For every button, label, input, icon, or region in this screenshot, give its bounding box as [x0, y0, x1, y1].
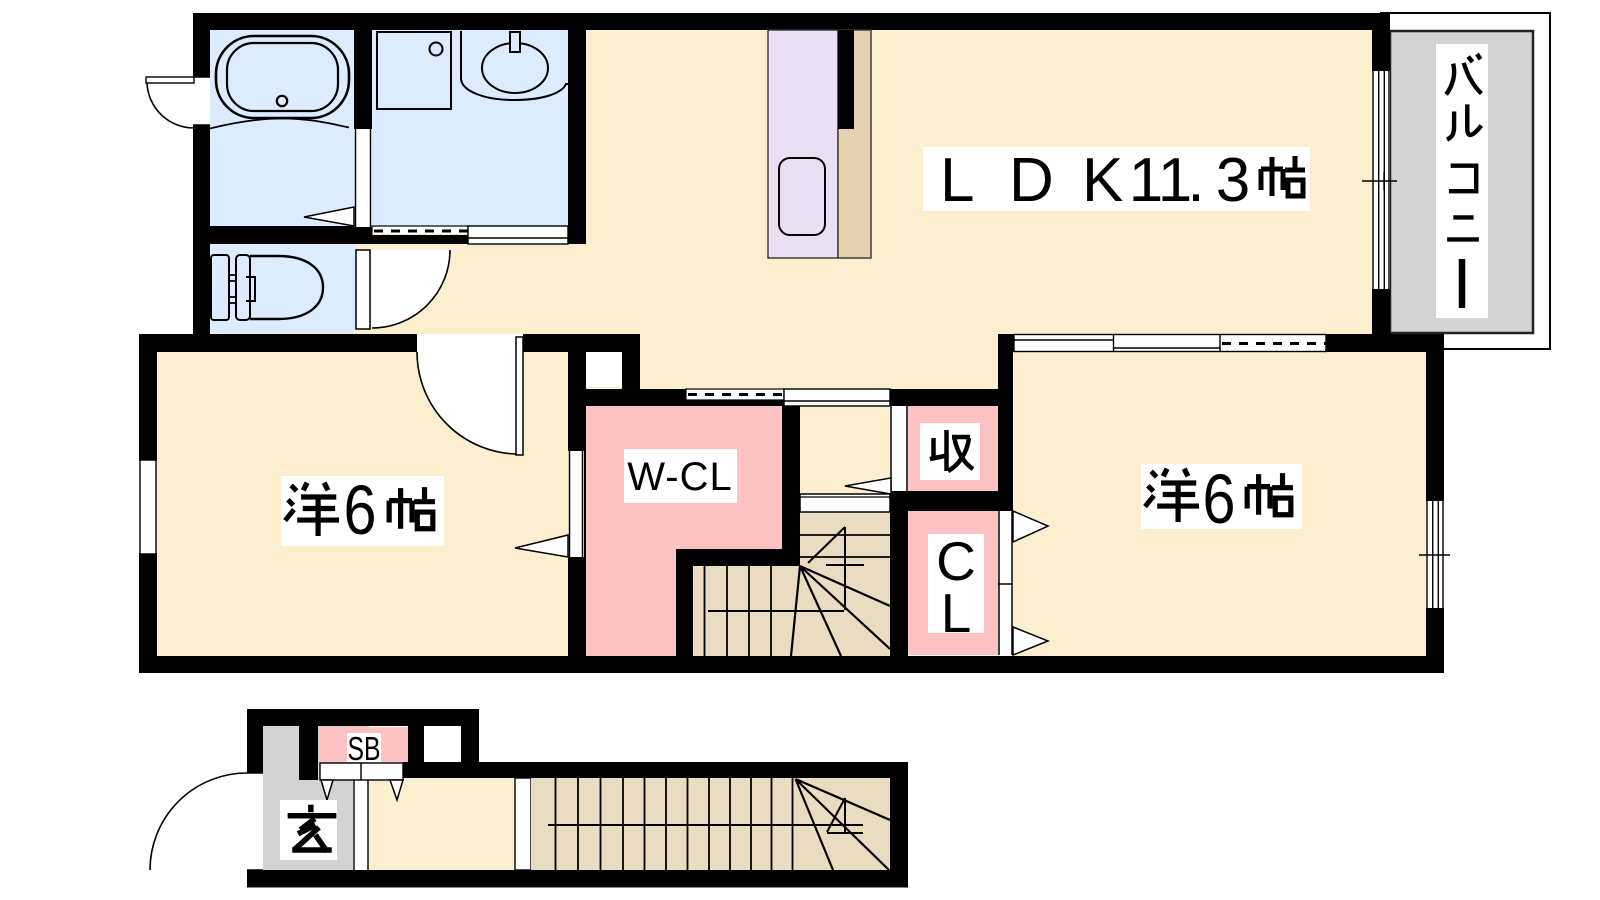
svg-text:6: 6	[1203, 460, 1236, 538]
svg-text:SB: SB	[348, 730, 381, 767]
svg-text:6: 6	[344, 471, 377, 549]
svg-text:W-CL: W-CL	[627, 455, 732, 499]
svg-text:K: K	[1082, 146, 1123, 215]
svg-text:.: .	[1187, 146, 1204, 215]
svg-text:D: D	[1009, 146, 1054, 215]
svg-text:L: L	[941, 582, 972, 644]
svg-text:3: 3	[1216, 146, 1250, 215]
svg-text:L: L	[940, 146, 974, 215]
